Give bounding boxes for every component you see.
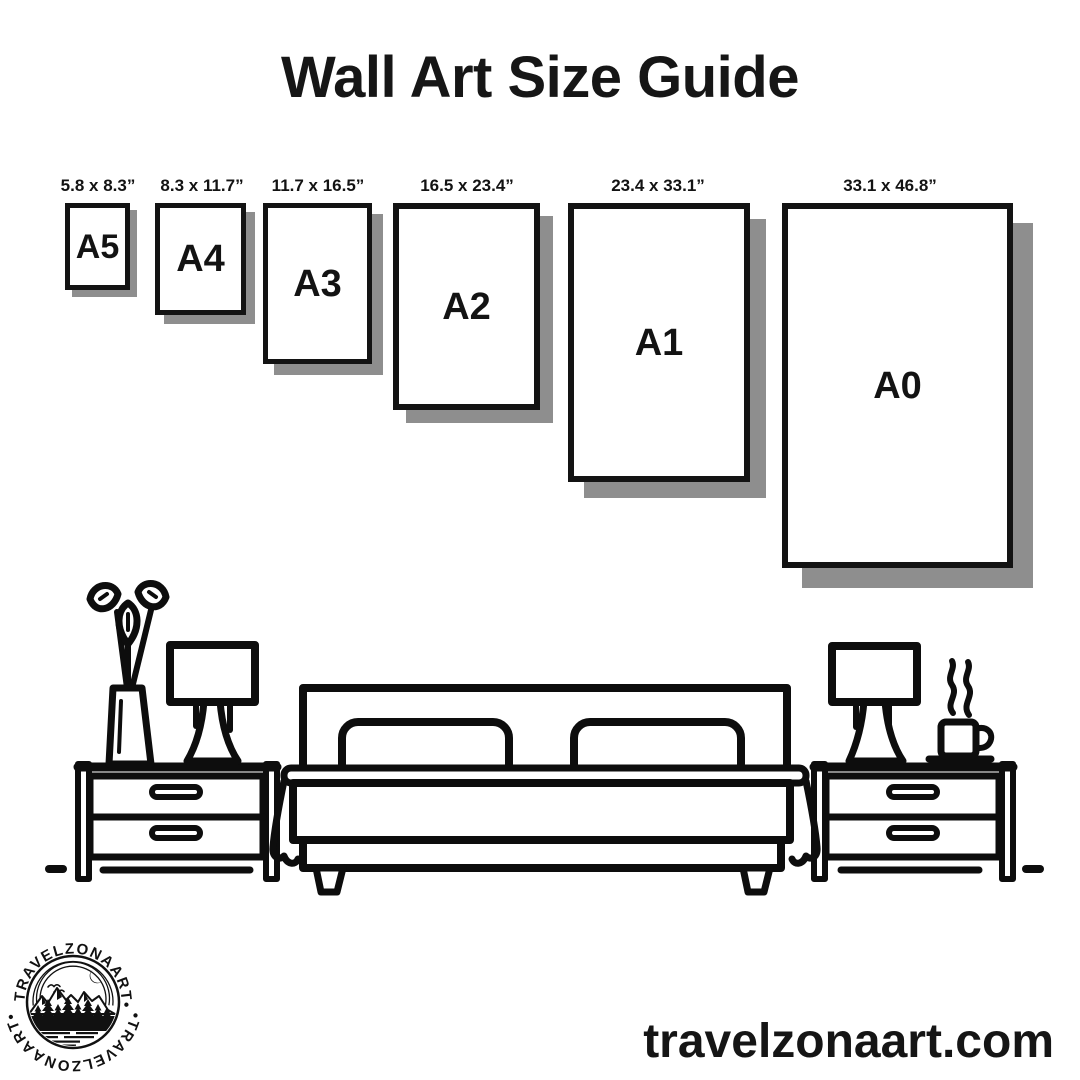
table-lamp-icon bbox=[170, 645, 255, 761]
size-frame-label: A2 bbox=[442, 288, 491, 326]
size-frame-a5: A5 bbox=[65, 203, 130, 290]
dimension-label-a2: 16.5 x 23.4” bbox=[382, 176, 552, 196]
size-frame-a0: A0 bbox=[782, 203, 1013, 568]
bedroom-scene bbox=[0, 578, 1080, 913]
flower-vase-icon bbox=[90, 583, 166, 764]
size-frame-label: A1 bbox=[635, 324, 684, 362]
page-title: Wall Art Size Guide bbox=[0, 44, 1080, 111]
size-frame-a3: A3 bbox=[263, 203, 372, 364]
website-url: travelzonaart.com bbox=[643, 1014, 1054, 1069]
size-frame-a4: A4 bbox=[155, 203, 246, 315]
logo-emblem bbox=[27, 962, 119, 1051]
nightstand-icon bbox=[814, 764, 1013, 879]
table-lamp-icon bbox=[832, 646, 917, 761]
size-guide-page: Wall Art Size Guide 5.8 x 8.3” 8.3 x 11.… bbox=[0, 0, 1080, 1080]
brand-logo: •TRAVELZONAART• •TRAVELZONAART• bbox=[5, 925, 140, 1075]
size-frame-label: A5 bbox=[76, 230, 119, 264]
mountains-icon bbox=[29, 988, 115, 1014]
dimension-label-a1: 23.4 x 33.1” bbox=[573, 176, 743, 196]
nightstand-icon bbox=[78, 764, 277, 879]
dimension-label-a3: 11.7 x 16.5” bbox=[233, 176, 403, 196]
size-frame-label: A0 bbox=[873, 367, 922, 405]
size-frame-a1: A1 bbox=[568, 203, 750, 482]
size-frame-a2: A2 bbox=[393, 203, 540, 410]
size-frame-label: A3 bbox=[293, 265, 342, 303]
coffee-cup-icon bbox=[929, 661, 991, 759]
dimension-label-a0: 33.1 x 46.8” bbox=[805, 176, 975, 196]
double-bed-icon bbox=[273, 688, 817, 892]
size-frame-label: A4 bbox=[176, 240, 225, 278]
